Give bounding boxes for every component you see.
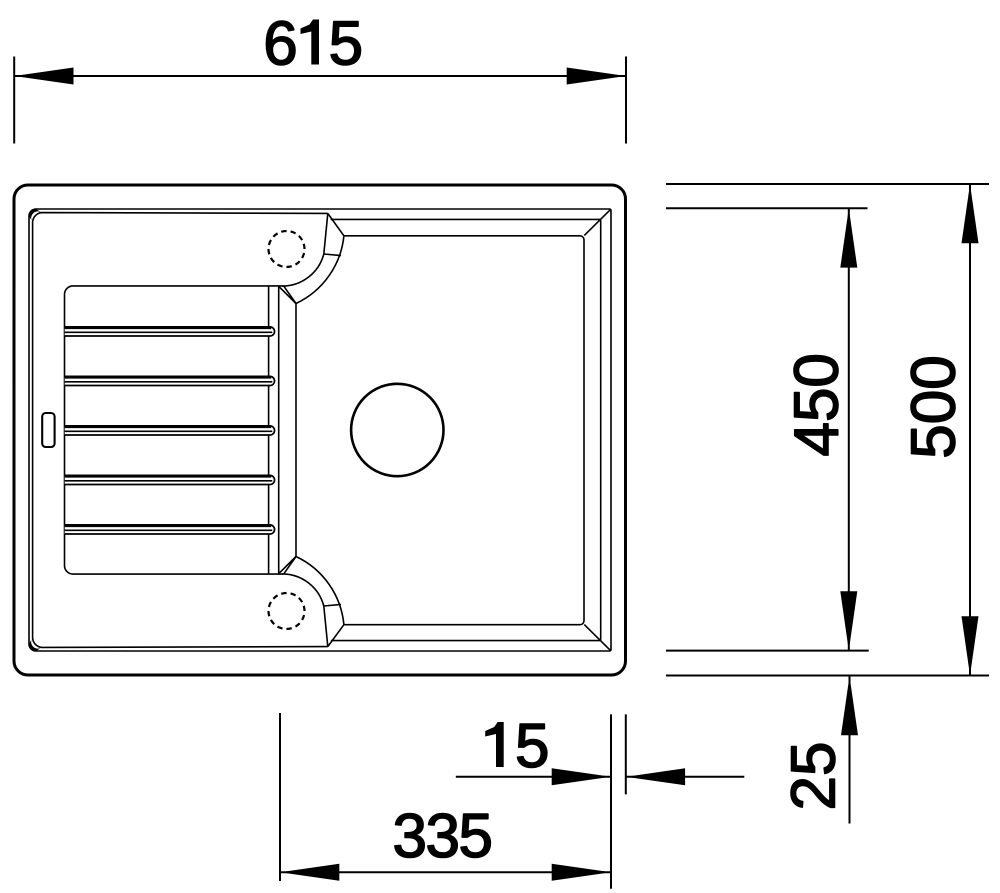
svg-text:5: 5	[329, 10, 363, 79]
svg-text:5: 5	[515, 712, 549, 781]
svg-text:450: 450	[782, 353, 851, 456]
svg-text:500: 500	[900, 355, 969, 458]
svg-text:335: 335	[393, 802, 492, 871]
svg-text:25: 25	[780, 742, 849, 811]
svg-text:6: 6	[263, 10, 297, 79]
